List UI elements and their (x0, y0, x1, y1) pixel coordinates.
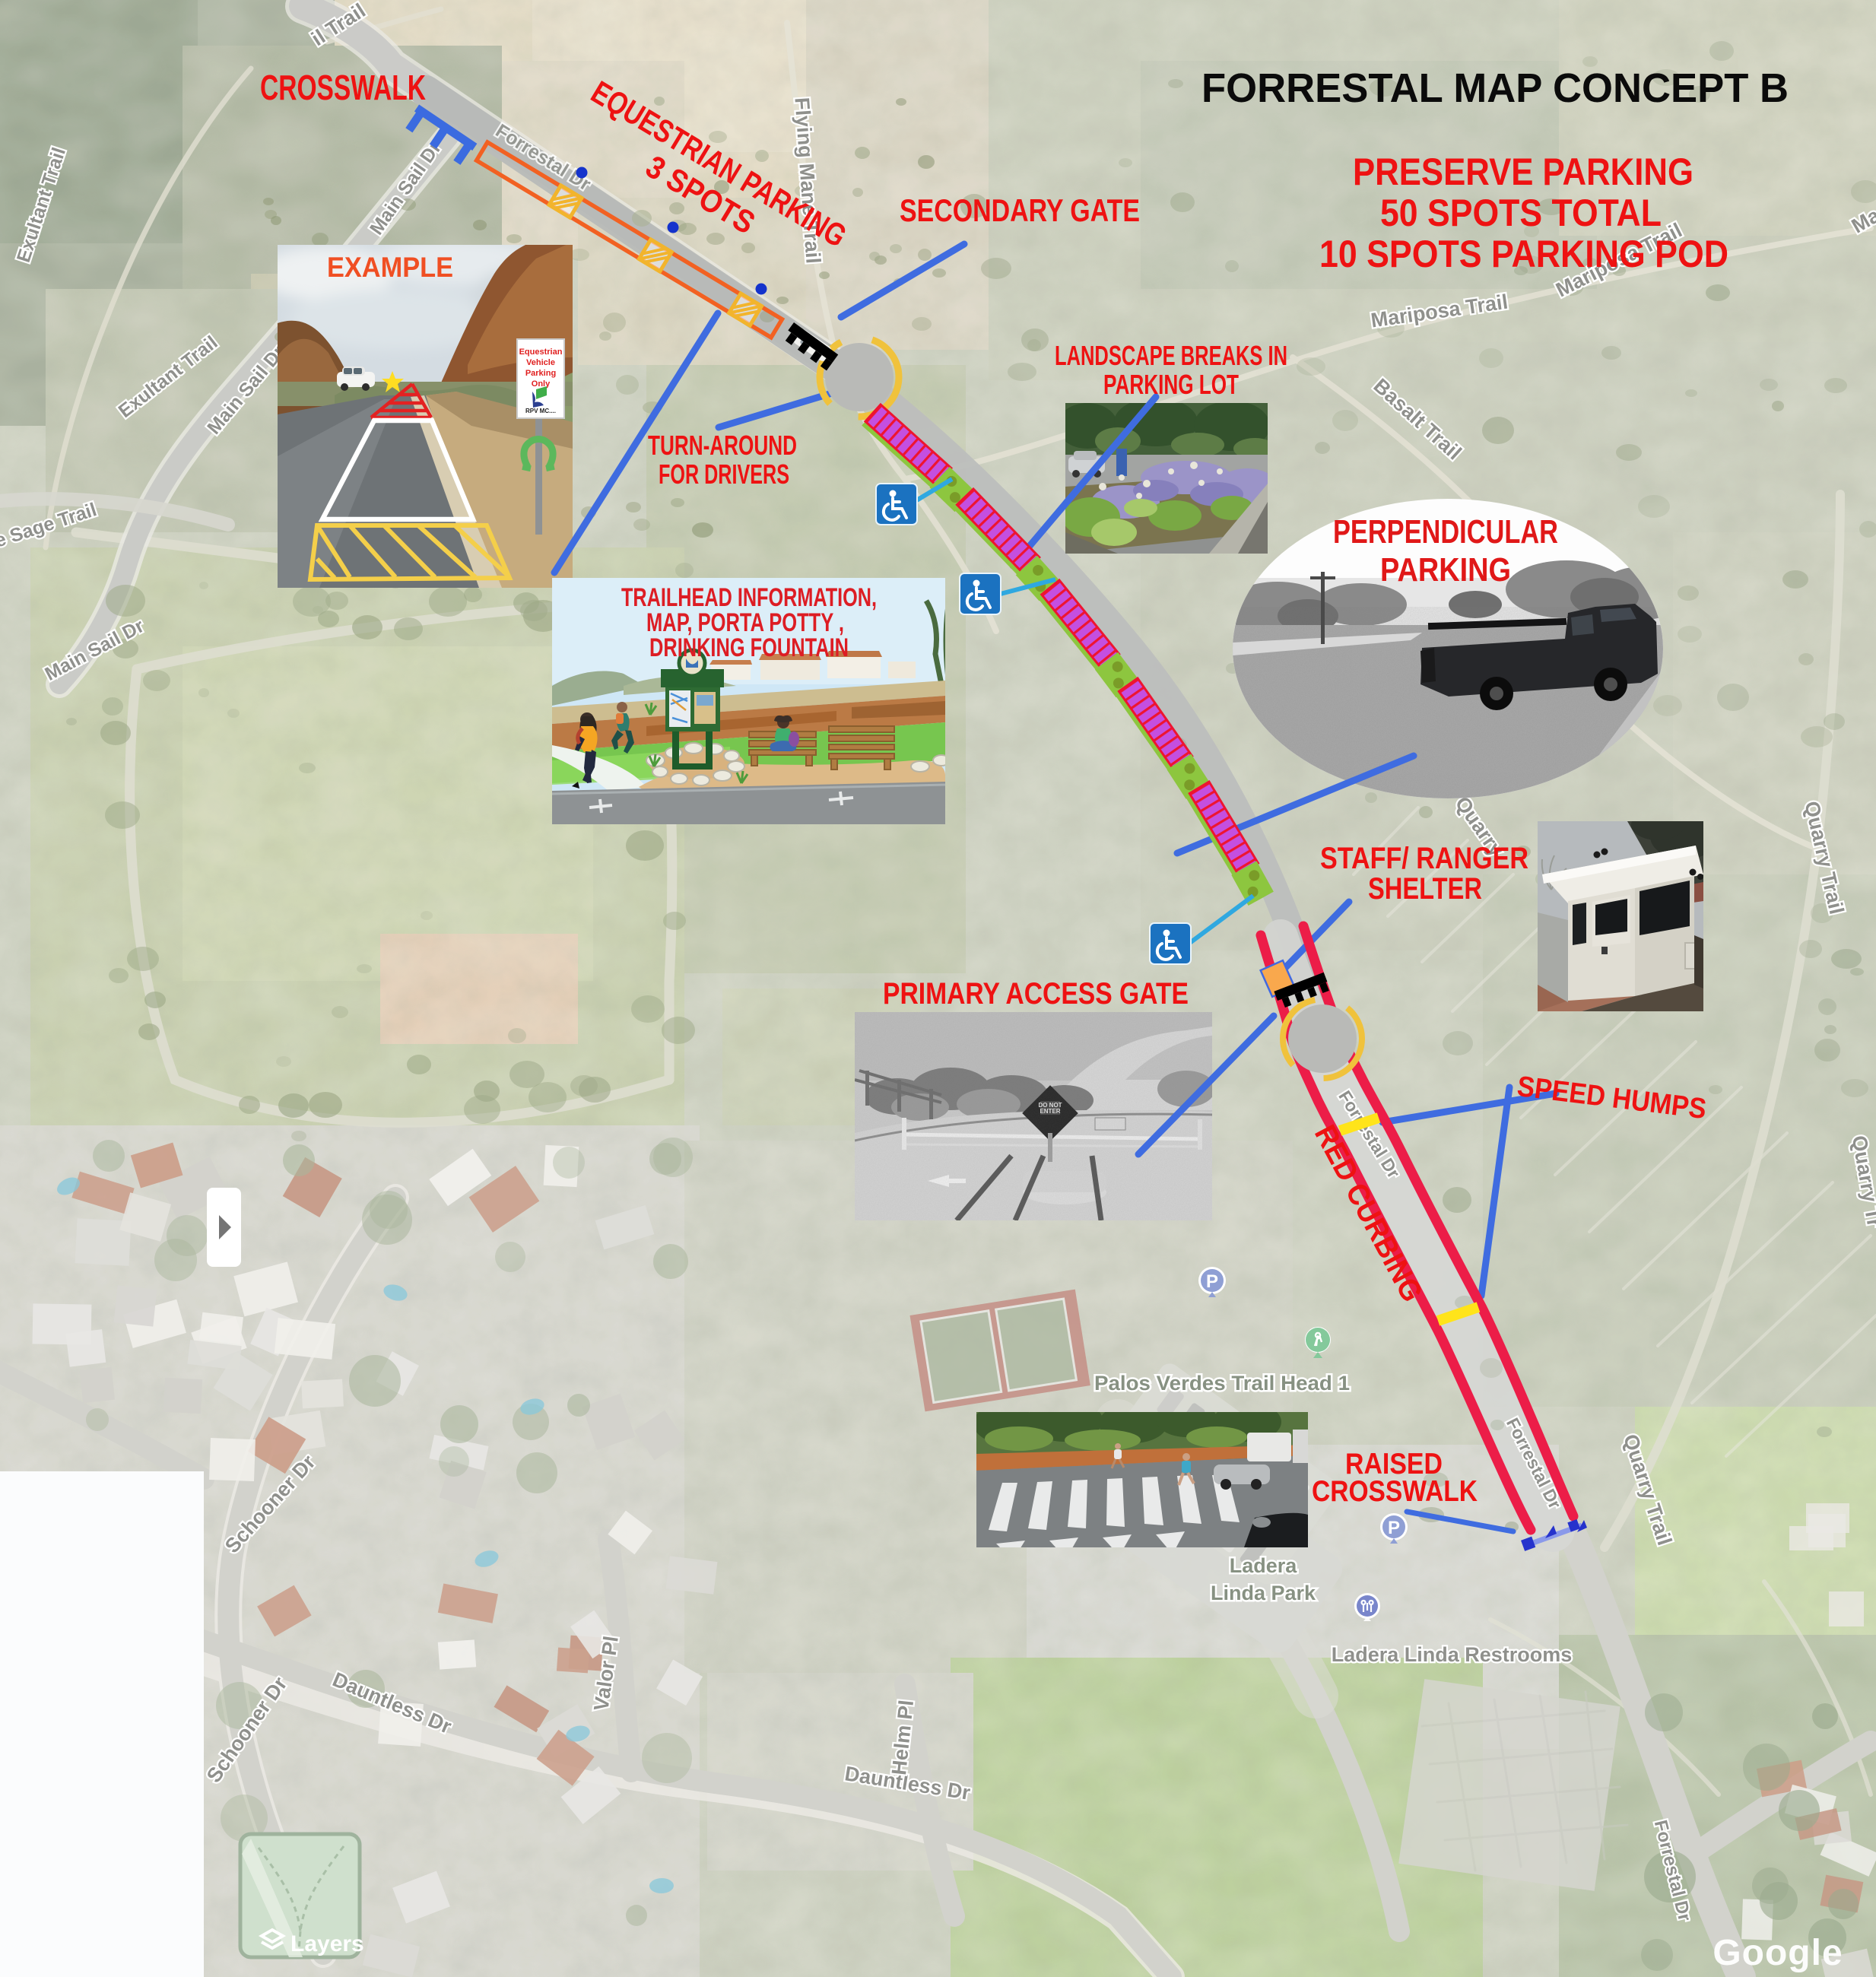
svg-text:DRINKING FOUNTAIN: DRINKING FOUNTAIN (649, 633, 849, 662)
svg-text:CROSSWALK: CROSSWALK (260, 68, 426, 107)
svg-text:PRESERVE PARKING: PRESERVE PARKING (1353, 151, 1693, 193)
svg-text:CROSSWALK: CROSSWALK (1312, 1475, 1478, 1508)
svg-text:LANDSCAPE BREAKS IN: LANDSCAPE BREAKS IN (1055, 340, 1287, 371)
svg-text:Only: Only (532, 379, 551, 389)
svg-text:EXAMPLE: EXAMPLE (327, 252, 453, 283)
svg-text:Linda Park: Linda Park (1211, 1582, 1316, 1604)
svg-text:Parking: Parking (525, 369, 556, 378)
svg-text:PRIMARY ACCESS GATE: PRIMARY ACCESS GATE (883, 977, 1189, 1011)
svg-text:Ladera Linda Restrooms: Ladera Linda Restrooms (1332, 1643, 1573, 1666)
svg-text:Vehicle: Vehicle (526, 358, 555, 367)
svg-text:SECONDARY GATE: SECONDARY GATE (900, 192, 1140, 228)
svg-text:P: P (1388, 1518, 1400, 1538)
svg-text:FOR DRIVERS: FOR DRIVERS (659, 459, 789, 490)
svg-text:Equestrian: Equestrian (519, 347, 563, 357)
svg-text:PARKING LOT: PARKING LOT (1103, 369, 1239, 400)
svg-text:Google: Google (1713, 1933, 1843, 1973)
svg-text:TURN-AROUND: TURN-AROUND (648, 430, 797, 461)
svg-text:PERPENDICULAR: PERPENDICULAR (1333, 513, 1558, 551)
svg-text:RPV MC....: RPV MC.... (525, 408, 556, 414)
svg-text:STAFF/ RANGER: STAFF/ RANGER (1320, 842, 1528, 875)
svg-text:SHELTER: SHELTER (1368, 872, 1482, 906)
svg-text:Layers: Layers (290, 1931, 364, 1956)
svg-text:FORRESTAL MAP CONCEPT B: FORRESTAL MAP CONCEPT B (1201, 65, 1789, 111)
svg-text:Palos Verdes Trail Head 1: Palos Verdes Trail Head 1 (1094, 1372, 1350, 1395)
svg-text:10 SPOTS PARKING POD: 10 SPOTS PARKING POD (1319, 233, 1728, 275)
svg-text:PARKING: PARKING (1380, 551, 1511, 589)
svg-text:50 SPOTS TOTAL: 50 SPOTS TOTAL (1380, 192, 1662, 234)
svg-text:Ladera: Ladera (1230, 1554, 1298, 1577)
svg-text:P: P (1206, 1271, 1218, 1292)
